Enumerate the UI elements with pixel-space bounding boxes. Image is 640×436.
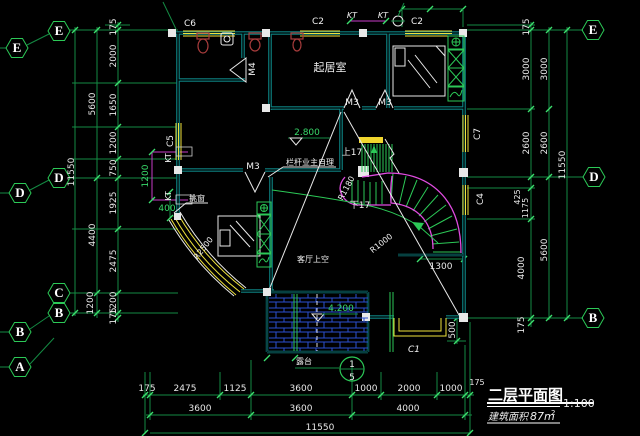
dim: 3000 <box>540 57 550 80</box>
title-block: 二层平面图 1:100 建筑面积 87m 2 <box>487 387 595 423</box>
dim-total: 11550 <box>306 423 335 433</box>
note-void-above: 客厅上空 <box>297 254 329 264</box>
window-label-c2: C2 <box>411 17 423 27</box>
bay-window-hatch <box>171 214 244 295</box>
dim: 750 <box>109 159 119 176</box>
axis-grid <box>0 2 583 436</box>
dim: 4000 <box>517 256 527 279</box>
axis-label: C <box>54 285 63 300</box>
dim: 4400 <box>88 223 98 246</box>
dim: 3600 <box>290 384 313 394</box>
door-label-m4: M4 <box>248 62 258 76</box>
axis-label: B <box>589 310 598 325</box>
dim: 175 <box>522 18 532 35</box>
note-bay-window: 挑窗 <box>189 193 205 203</box>
dim: 1000 <box>440 384 463 394</box>
window-c1-box <box>394 318 446 336</box>
area-exponent: 2 <box>551 409 555 417</box>
axis-label: E <box>13 40 22 55</box>
door-label-m3: M3 <box>246 162 260 172</box>
stair-up-label: 上17 <box>342 147 362 158</box>
door-m3c-swing <box>245 172 265 192</box>
window-label-c1: C1 <box>408 345 420 355</box>
dim: 175 <box>469 378 484 387</box>
toilet-icon <box>249 33 261 51</box>
wardrobe-icons <box>448 36 464 101</box>
dim: 1200 <box>86 291 96 314</box>
dim: 1000 <box>355 384 378 394</box>
axis-label: B <box>16 324 25 339</box>
dim: 175 <box>517 316 527 333</box>
drawing-scale: 1:100 <box>563 397 595 410</box>
drawing-title: 二层平面图 <box>488 387 563 404</box>
dim: 175 <box>138 384 155 394</box>
dim: 2600 <box>522 131 532 154</box>
dimension-text: 175 2000 1650 1200 750 1925 2475 1200 17… <box>67 18 568 433</box>
axis-label: A <box>15 359 25 374</box>
dim: 1175 <box>521 198 530 218</box>
floor-plan-canvas[interactable]: E D B A E D C B E D B 175 2000 1650 1200… <box>0 0 640 436</box>
dim: 3000 <box>522 57 532 80</box>
door-label-m3: M3 <box>345 98 359 108</box>
axis-label: D <box>589 169 598 184</box>
window-label-c5: C5 <box>166 135 176 147</box>
down-arrow <box>412 222 424 231</box>
axis-label: D <box>15 185 24 200</box>
dim: 2475 <box>109 250 119 273</box>
window-label-kt: KT <box>378 11 389 20</box>
stair-radius-inner: R1000 <box>368 232 394 255</box>
dim: 2475 <box>174 384 197 394</box>
window-label-c4: C4 <box>476 193 486 205</box>
dim-stair-landing: 1300 <box>430 262 453 272</box>
stair-down-label: 下17 <box>350 201 370 211</box>
dim: 2600 <box>540 131 550 154</box>
dim: 5600 <box>88 92 98 115</box>
window-label-kt: KT <box>164 153 173 163</box>
room-label-living: 起居室 <box>314 60 347 74</box>
door-label-m3: M3 <box>378 98 392 108</box>
bed-icon <box>218 216 260 256</box>
wardrobe-icons <box>257 202 271 267</box>
dim-bay-offset: 400 <box>158 204 175 214</box>
axis-label: E <box>589 22 598 37</box>
window-label-c7: C7 <box>473 128 483 140</box>
terrace <box>269 292 393 352</box>
axis-label: B <box>55 305 64 320</box>
dim: 1650 <box>109 93 119 116</box>
area-prefix: 建筑面积 <box>488 411 530 423</box>
dim: 5600 <box>540 238 550 261</box>
stair-top-landing <box>359 137 383 143</box>
dim-terrace-edge: 500 <box>448 321 458 338</box>
dim: 3600 <box>189 404 212 414</box>
dim: 1925 <box>109 192 119 215</box>
staircase <box>272 137 461 253</box>
windows <box>171 31 468 336</box>
window-label-c6: C6 <box>184 19 196 29</box>
dim: 175 <box>109 18 119 35</box>
bed-icon <box>393 46 445 96</box>
axis-label: E <box>55 23 64 38</box>
cad-floor-plan-screenshot: E D B A E D C B E D B 175 2000 1650 1200… <box>0 0 640 436</box>
dim: 4000 <box>397 404 420 414</box>
dim-total: 11550 <box>558 150 568 179</box>
section-sheet: 5 <box>349 373 355 383</box>
dim: 1125 <box>224 384 247 394</box>
dim: 1200 <box>109 131 119 154</box>
dim: 3600 <box>290 404 313 414</box>
window-label-kt: KT <box>164 191 173 201</box>
level-stair: 2.800 <box>294 128 320 138</box>
window-label-kt: KT <box>347 11 358 20</box>
note-railing: 栏杆业主自理 <box>286 157 334 167</box>
note-terrace: 露台 <box>296 356 312 366</box>
up-arrow <box>371 145 377 153</box>
dim: 2000 <box>398 384 421 394</box>
window-label-c2: C2 <box>312 17 324 27</box>
dim-total: 11550 <box>67 157 77 186</box>
level-terrace: 4.200 <box>328 304 354 314</box>
section-number: 1 <box>349 360 355 370</box>
dim: 175 <box>109 307 119 324</box>
dim-kt-shaft: 1200 <box>141 164 151 187</box>
stair-radius-outer: R1180 <box>336 175 356 202</box>
dim: 2000 <box>109 44 119 67</box>
axis-label: D <box>54 170 63 185</box>
